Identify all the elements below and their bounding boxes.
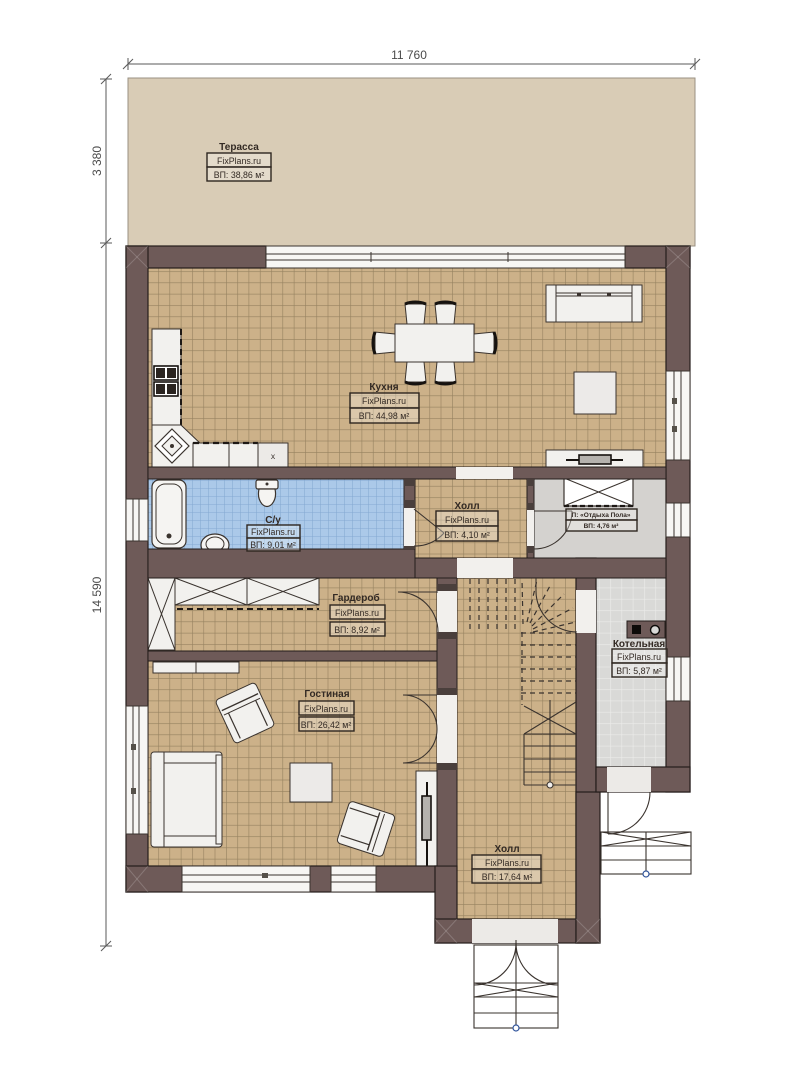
svg-text:FixPlans.ru: FixPlans.ru [251,527,295,537]
svg-text:ВП: 38,86 м²: ВП: 38,86 м² [214,170,265,180]
svg-text:Гардероб: Гардероб [332,592,379,604]
svg-text:FixPlans.ru: FixPlans.ru [617,652,661,662]
svg-text:FixPlans.ru: FixPlans.ru [217,156,261,166]
svg-text:FixPlans.ru: FixPlans.ru [362,396,406,406]
svg-text:Гостиная: Гостиная [304,689,349,700]
svg-text:Кухня: Кухня [369,382,398,393]
svg-text:FixPlans.ru: FixPlans.ru [335,608,379,618]
svg-text:ВП: 4,10 м²: ВП: 4,10 м² [444,530,490,540]
svg-text:FixPlans.ru: FixPlans.ru [445,515,489,525]
svg-text:ВП: 9,01 м²: ВП: 9,01 м² [250,540,296,550]
svg-text:Терасса: Терасса [219,142,259,153]
svg-text:14 590: 14 590 [90,576,104,613]
svg-text:ВП: 8,92 м²: ВП: 8,92 м² [334,625,380,635]
svg-text:FixPlans.ru: FixPlans.ru [304,704,348,714]
svg-text:ВП: 17,64 м²: ВП: 17,64 м² [482,872,533,882]
svg-text:ВП: 44,98 м²: ВП: 44,98 м² [359,411,410,421]
svg-text:ВП: 26,42 м²: ВП: 26,42 м² [301,720,352,730]
svg-text:Холл: Холл [494,844,519,855]
svg-text:3 380: 3 380 [90,146,104,176]
svg-text:ВП: 4,76 м²: ВП: 4,76 м² [584,523,620,530]
svg-text:FixPlans.ru: FixPlans.ru [485,858,529,868]
svg-text:П: «Отдыха Пола»: П: «Отдыха Пола» [572,512,631,519]
svg-text:ВП: 5,87 м²: ВП: 5,87 м² [616,666,662,676]
svg-text:11 760: 11 760 [391,48,427,62]
